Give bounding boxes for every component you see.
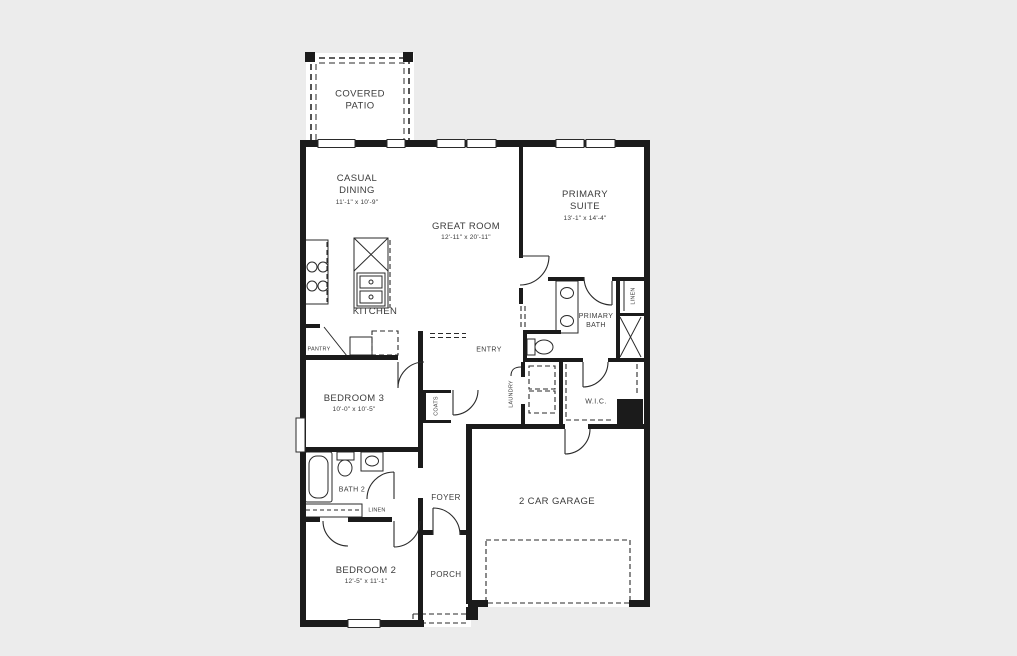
room-dims: 10'-0" x 10'-5": [324, 406, 385, 414]
room-name: BEDROOM 2: [336, 565, 397, 577]
window: [437, 140, 465, 148]
room-name: BATH 2: [339, 485, 365, 494]
room-label-laundry: LAUNDRY: [508, 380, 515, 408]
room-label-pantry: PANTRY: [307, 346, 330, 353]
room-label-primary-bath: PRIMARY BATH: [579, 312, 614, 330]
room-name: COATS: [433, 396, 440, 416]
room-label-porch: PORCH: [431, 570, 462, 580]
patio-door-panel: [387, 140, 405, 148]
room-name: PORCH: [431, 570, 462, 580]
room-name: PRIMARY SUITE: [562, 189, 608, 214]
room-label-covered-patio: COVERED PATIO: [335, 89, 385, 114]
room-label-bedroom2: BEDROOM 2 12'-5" x 11'-1": [336, 565, 397, 587]
room-name: FOYER: [431, 493, 461, 503]
room-name: ENTRY: [476, 345, 502, 354]
window: [467, 140, 496, 148]
window: [348, 620, 380, 628]
room-label-primary-suite: PRIMARY SUITE 13'-1" x 14'-4": [562, 189, 608, 223]
room-label-linen-primary: LINEN: [630, 287, 637, 304]
room-name: KITCHEN: [353, 306, 398, 318]
room-label-casual-dining: CASUAL DINING 11'-1" x 10'-9": [336, 173, 379, 207]
room-dims: 12'-11" x 20'-11": [432, 234, 500, 242]
room-name: PRIMARY BATH: [579, 312, 614, 330]
room-name: W.I.C.: [585, 397, 606, 406]
room-label-wic: W.I.C.: [585, 397, 606, 406]
room-name: LAUNDRY: [508, 380, 515, 408]
window: [556, 140, 584, 148]
room-label-coats: COATS: [433, 396, 440, 416]
room-name: CASUAL DINING: [336, 173, 379, 198]
room-label-foyer: FOYER: [431, 493, 461, 503]
window: [296, 418, 305, 452]
room-dims: 11'-1" x 10'-9": [336, 199, 379, 207]
porch-post: [466, 607, 478, 620]
bathtub-icon: [305, 452, 332, 502]
room-label-great-room: GREAT ROOM 12'-11" x 20'-11": [432, 221, 500, 243]
room-label-garage: 2 CAR GARAGE: [519, 496, 595, 508]
room-label-entry: ENTRY: [476, 345, 502, 354]
floorplan: COVERED PATIO CASUAL DINING 11'-1" x 10'…: [0, 0, 1017, 656]
room-name: COVERED PATIO: [335, 89, 385, 114]
sink-cabinet: [361, 452, 383, 471]
room-name: PANTRY: [307, 346, 330, 353]
floorplan-drawing: [0, 0, 1017, 656]
sink-icon: [561, 316, 574, 327]
room-name: 2 CAR GARAGE: [519, 496, 595, 508]
window: [586, 140, 615, 148]
patio-door-panel: [318, 140, 355, 148]
room-dims: 13'-1" x 14'-4": [562, 215, 608, 223]
room-label-bath2: BATH 2: [339, 485, 365, 494]
room-label-bedroom3: BEDROOM 3 10'-0" x 10'-5": [324, 393, 385, 415]
sink-icon: [561, 288, 574, 299]
room-name: LINEN: [630, 287, 637, 304]
room-label-linen-bath2: LINEN: [368, 507, 385, 514]
room-name: BEDROOM 3: [324, 393, 385, 405]
bath2-shelf: [304, 504, 362, 517]
room-name: GREAT ROOM: [432, 221, 500, 233]
room-dims: 12'-5" x 11'-1": [336, 578, 397, 586]
room-name: LINEN: [368, 507, 385, 514]
room-label-kitchen: KITCHEN: [353, 306, 398, 318]
toilet-icon: [527, 339, 553, 355]
